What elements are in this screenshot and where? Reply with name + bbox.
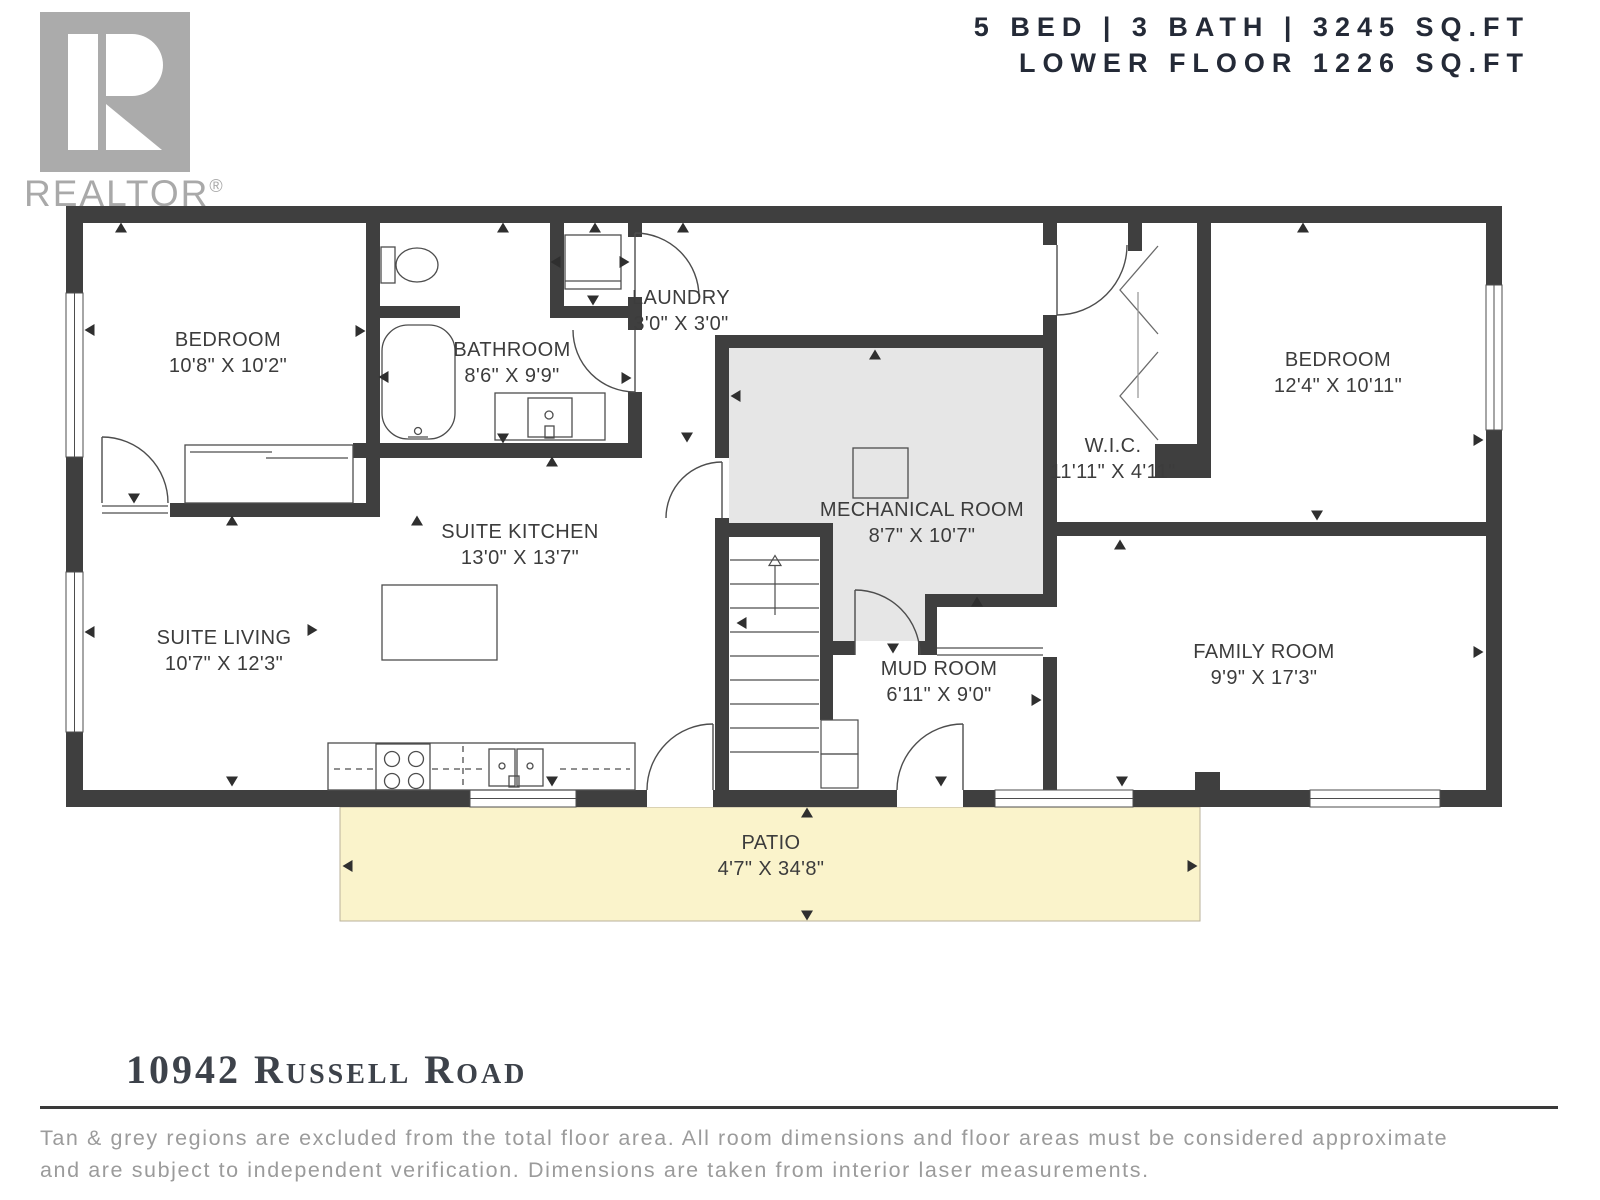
- closet-bedroom-1: [102, 445, 353, 513]
- svg-text:BEDROOM: BEDROOM: [1285, 349, 1391, 371]
- svg-text:8'6" X 9'9": 8'6" X 9'9": [464, 365, 559, 387]
- door-kitchen-patio: [647, 724, 713, 790]
- svg-text:10'7" X 12'3": 10'7" X 12'3": [165, 653, 283, 675]
- svg-text:LAUNDRY: LAUNDRY: [632, 287, 730, 309]
- svg-text:4'7" X 34'8": 4'7" X 34'8": [718, 858, 825, 880]
- floorplan-page: REALTOR® 5 BED | 3 BATH | 3245 SQ.FT LOW…: [0, 0, 1600, 1200]
- toilet-icon: [381, 247, 438, 283]
- door-bathroom: [573, 330, 635, 392]
- svg-text:BEDROOM: BEDROOM: [175, 329, 281, 351]
- door-mud-room-patio: [897, 724, 963, 790]
- stove-icon: [376, 744, 430, 790]
- svg-text:FAMILY ROOM: FAMILY ROOM: [1193, 641, 1334, 663]
- room-label-bedroom-2: BEDROOM 12'4" X 10'11": [1274, 349, 1402, 397]
- property-address: 10942 Russell Road: [126, 1046, 527, 1093]
- door-wic: [1057, 245, 1127, 315]
- svg-text:10'8" X 10'2": 10'8" X 10'2": [169, 355, 287, 377]
- disclaimer-line-1: Tan & grey regions are excluded from the…: [40, 1122, 1448, 1154]
- room-label-suite-living: SUITE LIVING 10'7" X 12'3": [157, 627, 292, 675]
- svg-text:9'9" X 17'3": 9'9" X 17'3": [1211, 667, 1318, 689]
- door-bedroom-1: [102, 437, 168, 503]
- room-label-family-room: FAMILY ROOM 9'9" X 17'3": [1193, 641, 1334, 689]
- svg-text:PATIO: PATIO: [741, 832, 800, 854]
- footer-divider: [40, 1106, 1558, 1109]
- svg-text:MUD ROOM: MUD ROOM: [881, 658, 998, 680]
- kitchen-counter: [328, 743, 635, 790]
- kitchen-island: [382, 585, 497, 660]
- svg-text:11'11" X 4'11": 11'11" X 4'11": [1050, 461, 1175, 483]
- door-kitchen-hall: [666, 462, 722, 518]
- washer-icon: [565, 235, 621, 289]
- svg-text:SUITE KITCHEN: SUITE KITCHEN: [441, 521, 598, 543]
- svg-text:12'4" X 10'11": 12'4" X 10'11": [1274, 375, 1402, 397]
- svg-text:13'0" X 13'7": 13'0" X 13'7": [461, 547, 579, 569]
- svg-text:MECHANICAL ROOM: MECHANICAL ROOM: [820, 499, 1024, 521]
- room-label-suite-kitchen: SUITE KITCHEN 13'0" X 13'7": [441, 521, 598, 569]
- svg-text:SUITE LIVING: SUITE LIVING: [157, 627, 292, 649]
- kitchen-sink-icon: [489, 749, 543, 787]
- room-label-bedroom-1: BEDROOM 10'8" X 10'2": [169, 329, 287, 377]
- bathtub-icon: [382, 325, 455, 439]
- svg-text:6'11" X 9'0": 6'11" X 9'0": [886, 684, 991, 706]
- disclaimer: Tan & grey regions are excluded from the…: [40, 1122, 1448, 1187]
- disclaimer-line-2: and are subject to independent verificat…: [40, 1154, 1448, 1186]
- floor-plan: BEDROOM 10'8" X 10'2" BATHROOM 8'6" X 9'…: [0, 0, 1600, 1200]
- wic-closet-symbols: [1120, 246, 1158, 440]
- svg-text:W.I.C.: W.I.C.: [1085, 435, 1142, 457]
- room-label-bathroom: BATHROOM 8'6" X 9'9": [453, 339, 570, 387]
- room-label-laundry: LAUNDRY 3'0" X 3'0": [632, 287, 730, 335]
- svg-text:BATHROOM: BATHROOM: [453, 339, 570, 361]
- closet-mud-room: [937, 648, 1043, 655]
- svg-text:8'7" X 10'7": 8'7" X 10'7": [869, 525, 976, 547]
- sink-vanity-icon: [495, 393, 605, 440]
- svg-text:3'0" X 3'0": 3'0" X 3'0": [633, 313, 728, 335]
- room-label-mud-room: MUD ROOM 6'11" X 9'0": [881, 658, 998, 706]
